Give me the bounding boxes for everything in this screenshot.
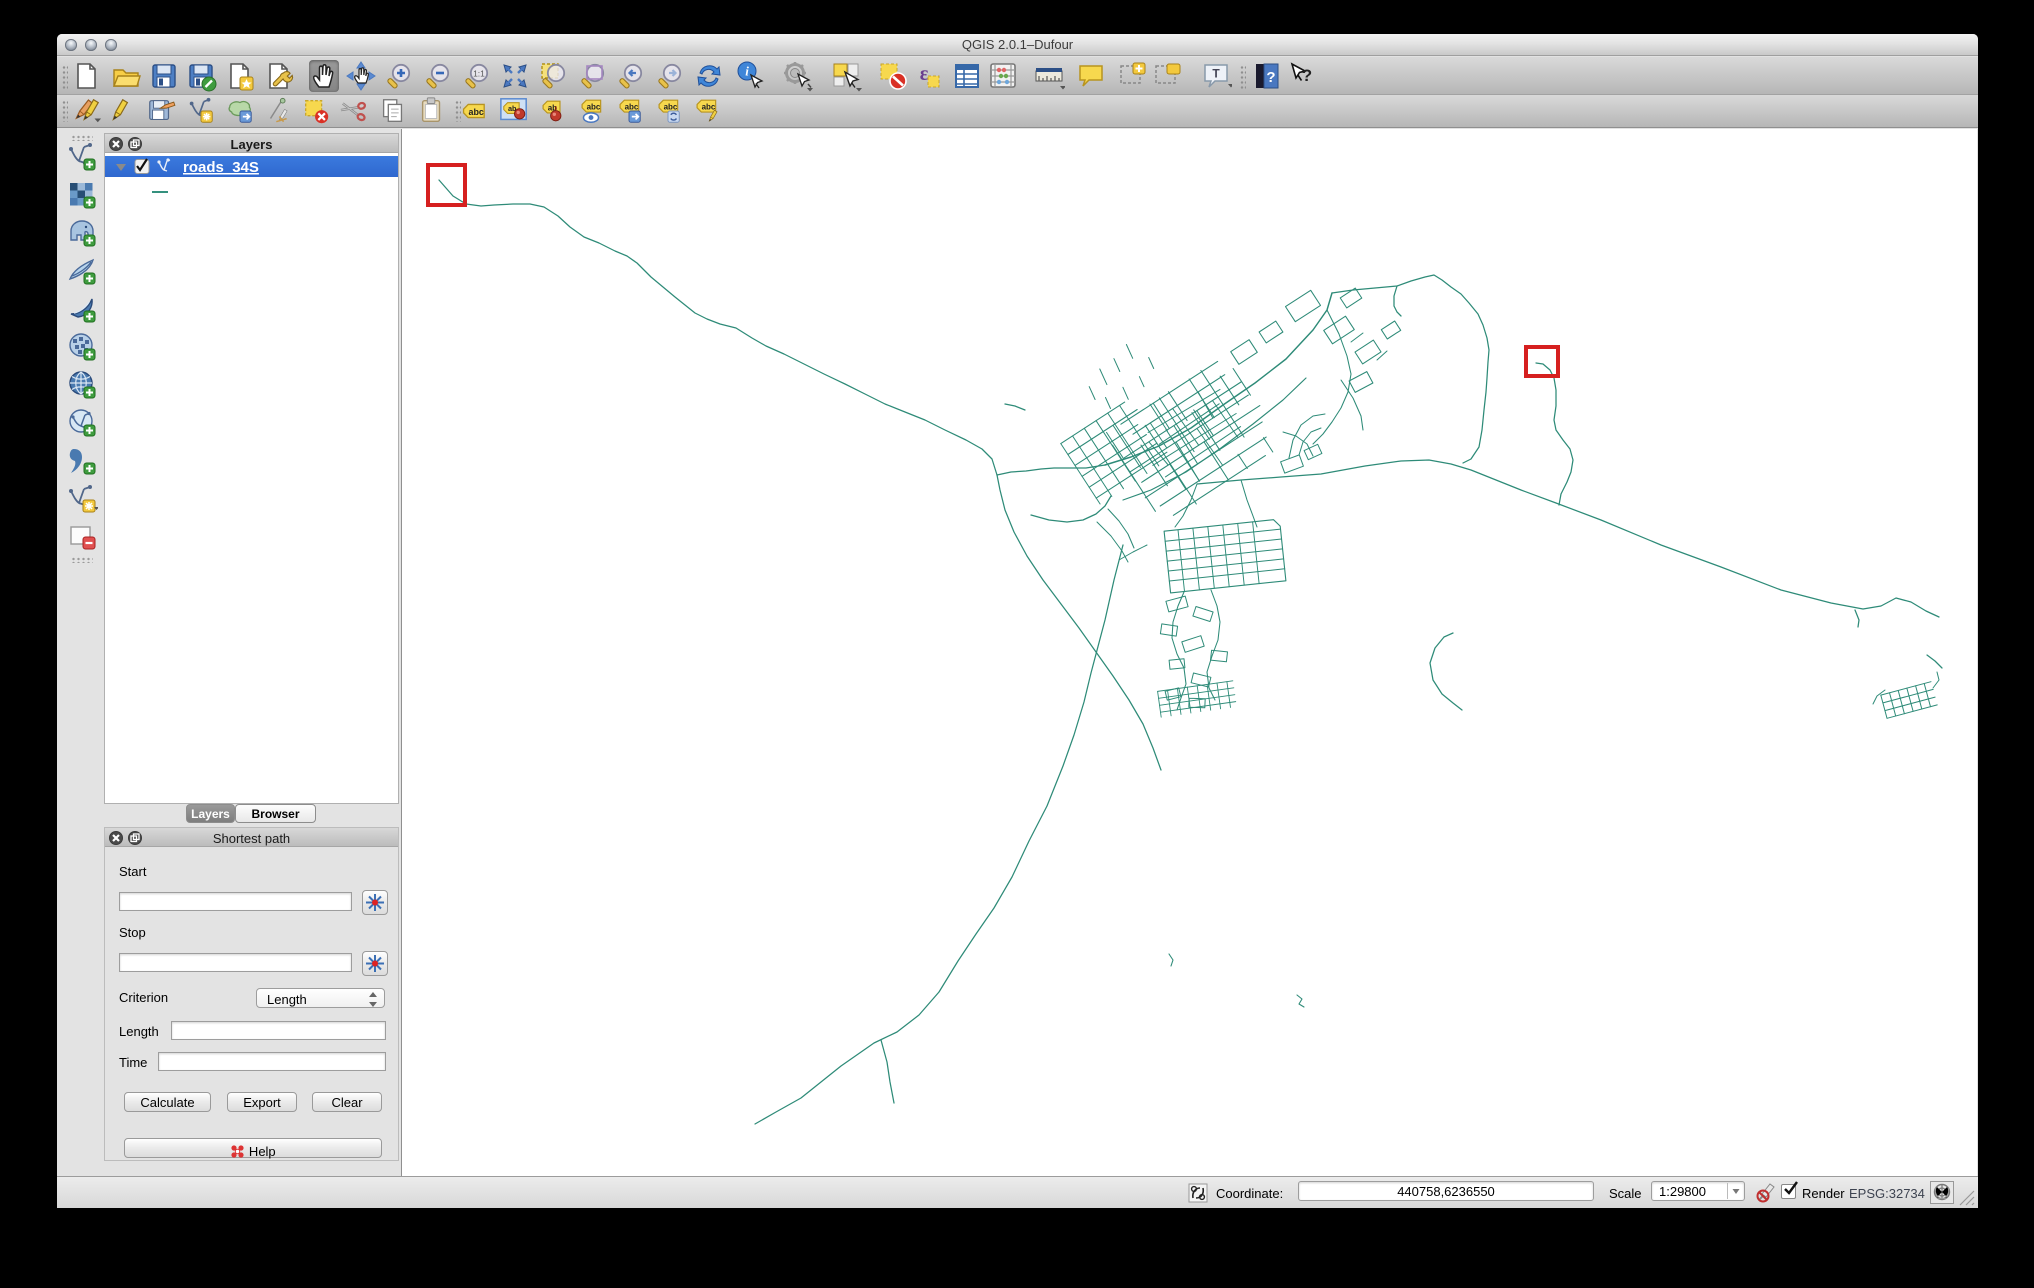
svg-text:roads_34S: roads_34S — [183, 159, 259, 176]
svg-text:?: ? — [1302, 66, 1312, 85]
svg-text:abc: abc — [625, 103, 639, 112]
svg-text:?: ? — [1266, 69, 1275, 86]
svg-text:abc: abc — [469, 107, 484, 117]
svg-text:ε: ε — [920, 63, 929, 85]
svg-text:i: i — [745, 64, 749, 79]
svg-text:abc: abc — [702, 103, 716, 112]
svg-text:abc: abc — [587, 103, 601, 112]
svg-text:1:1: 1:1 — [473, 69, 485, 79]
svg-text:T: T — [1212, 67, 1220, 81]
svg-text:abc: abc — [664, 103, 678, 112]
